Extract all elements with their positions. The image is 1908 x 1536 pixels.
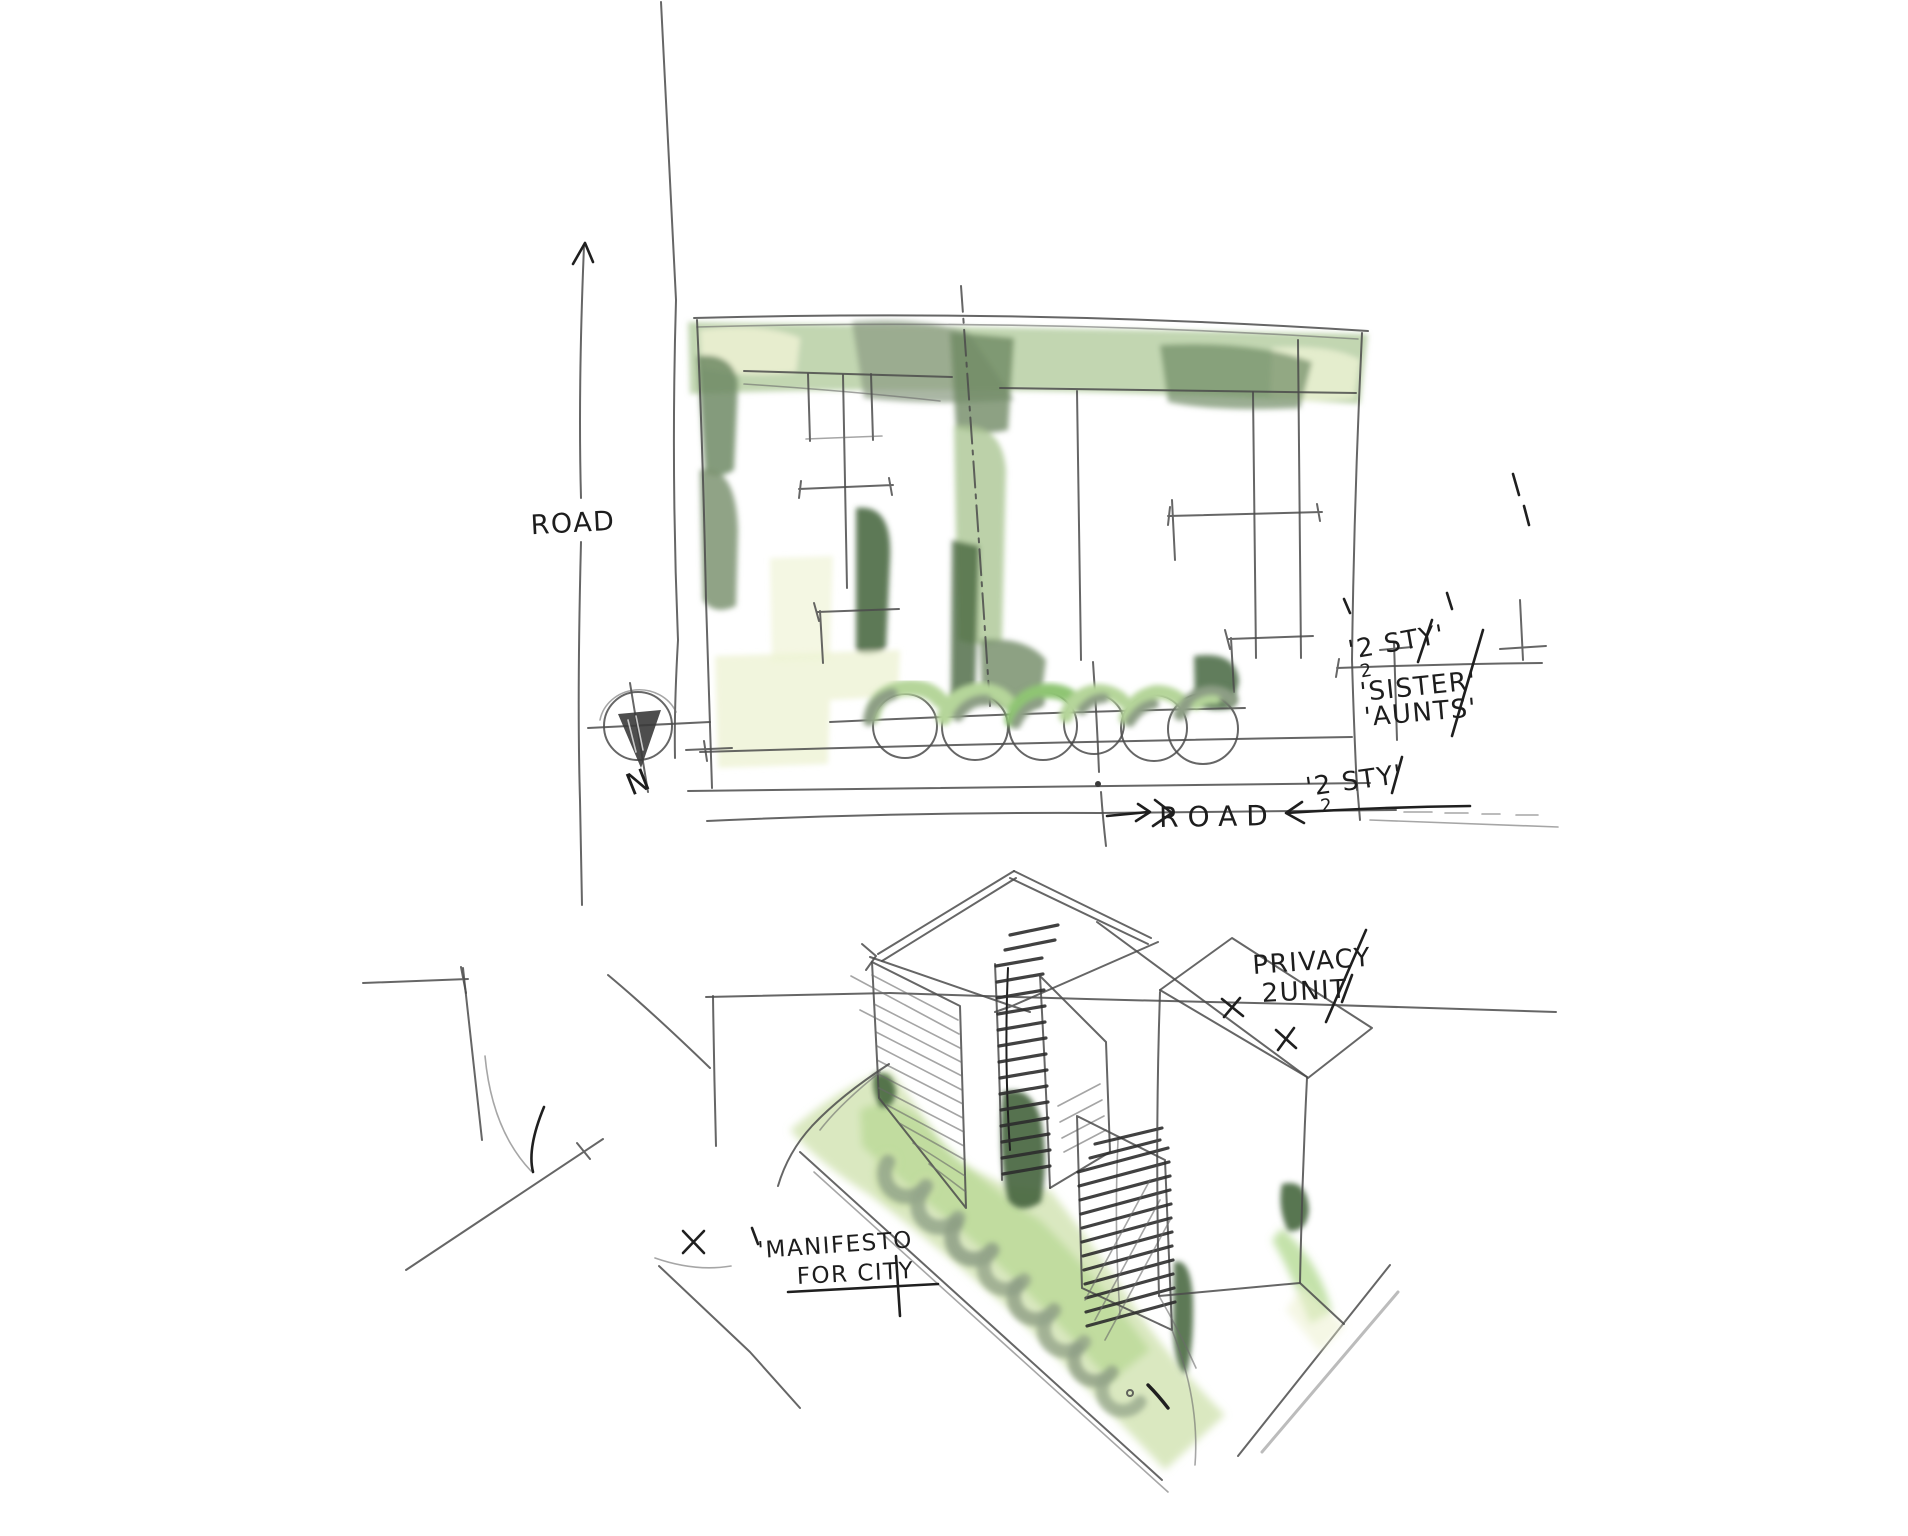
sketch-sheet: ROAD N '2 STY' 2 'SISTER' 'AUNTS' '2 STY…	[0, 0, 1908, 1536]
compass	[588, 683, 710, 792]
site-approach-vertical	[713, 996, 716, 1146]
roof-edge-nw	[878, 871, 1016, 961]
privacy-x-left	[1222, 998, 1243, 1017]
frontage-line-3	[688, 783, 1370, 791]
road-edge-left-lower	[579, 542, 582, 905]
privacy-note-line1: PRIVACY	[1252, 943, 1373, 981]
privacy-x-below	[1276, 1028, 1296, 1050]
site-approach-curve	[608, 975, 710, 1068]
junction-diagonal	[406, 1139, 603, 1270]
junction-x-mark	[683, 1231, 704, 1253]
junction-curb-arc	[485, 1056, 531, 1171]
junction-vertical	[463, 968, 482, 1140]
dark-bush-right	[1280, 1183, 1309, 1231]
storey-note-upper: '2 STY'	[1346, 620, 1448, 667]
street-trees	[869, 688, 1238, 764]
roof-eaves-front	[870, 942, 1158, 1012]
compass-north-label: N	[621, 762, 656, 803]
junction-hook	[531, 1107, 544, 1172]
road-line-dashes	[1404, 812, 1538, 815]
privacy-note-line2: 2UNIT	[1261, 975, 1349, 1009]
hedge-center-deep	[951, 540, 979, 702]
dark-tree-mid	[1173, 1261, 1193, 1374]
plan-tree-dark-left	[856, 508, 890, 655]
compass-needle-icon	[618, 710, 661, 768]
roof-edge-ne	[1010, 871, 1151, 944]
road-network	[363, 2, 1558, 1492]
road-edge-left-upper	[580, 246, 584, 498]
plan-pale-wash-court	[770, 556, 833, 662]
hedge-center-top	[950, 332, 1014, 433]
road-label-horizontal: ROAD	[1159, 799, 1277, 834]
road-edge-right	[661, 2, 678, 758]
centerline-dot	[1095, 781, 1101, 787]
architectural-sketch: ROAD N '2 STY' 2 'SISTER' 'AUNTS' '2 STY…	[0, 0, 1908, 1536]
junction-diagonal-2	[659, 1266, 800, 1408]
junction-arc-2	[655, 1258, 731, 1268]
road-line-second	[1370, 820, 1558, 827]
privacy-reference-line	[706, 993, 1556, 1012]
road-label-vertical: ROAD	[530, 506, 616, 541]
junction-tee	[363, 967, 468, 993]
